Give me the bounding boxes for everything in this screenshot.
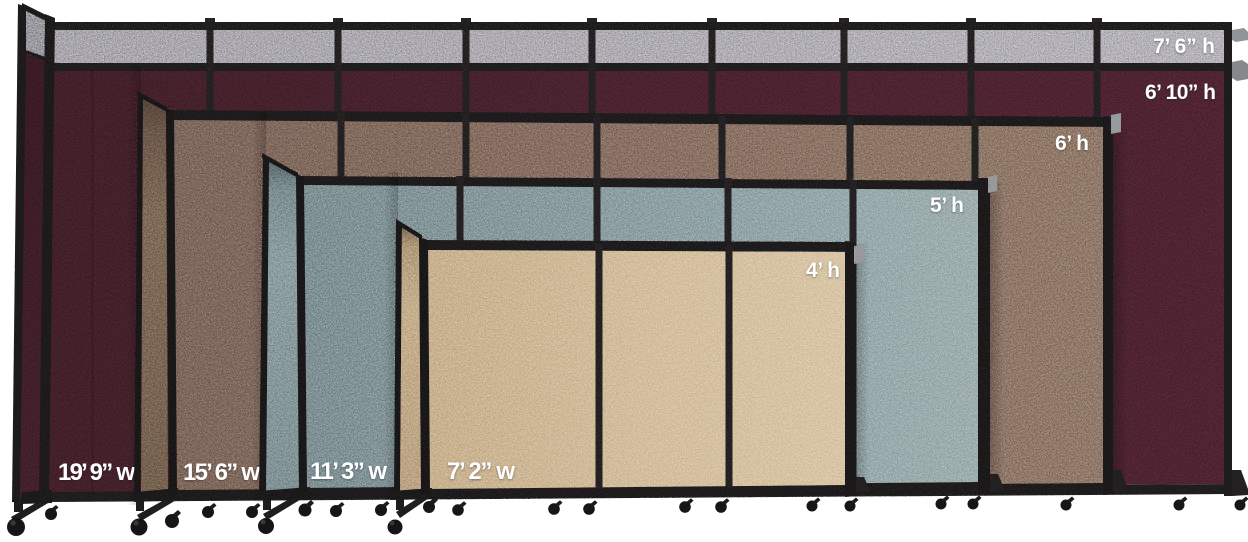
svg-text:19’ 9” w: 19’ 9” w xyxy=(58,459,135,486)
svg-text:7’ 6” h: 7’ 6” h xyxy=(1153,35,1215,58)
svg-text:7’ 2” w: 7’ 2” w xyxy=(447,458,515,485)
svg-text:4’ h: 4’ h xyxy=(806,259,840,282)
svg-text:15’ 6” w: 15’ 6” w xyxy=(183,459,260,486)
svg-text:11’ 3” w: 11’ 3” w xyxy=(310,458,387,485)
svg-text:5’ h: 5’ h xyxy=(930,194,964,217)
svg-text:6’ 10” h: 6’ 10” h xyxy=(1145,81,1216,104)
svg-text:6’ h: 6’ h xyxy=(1055,132,1089,155)
